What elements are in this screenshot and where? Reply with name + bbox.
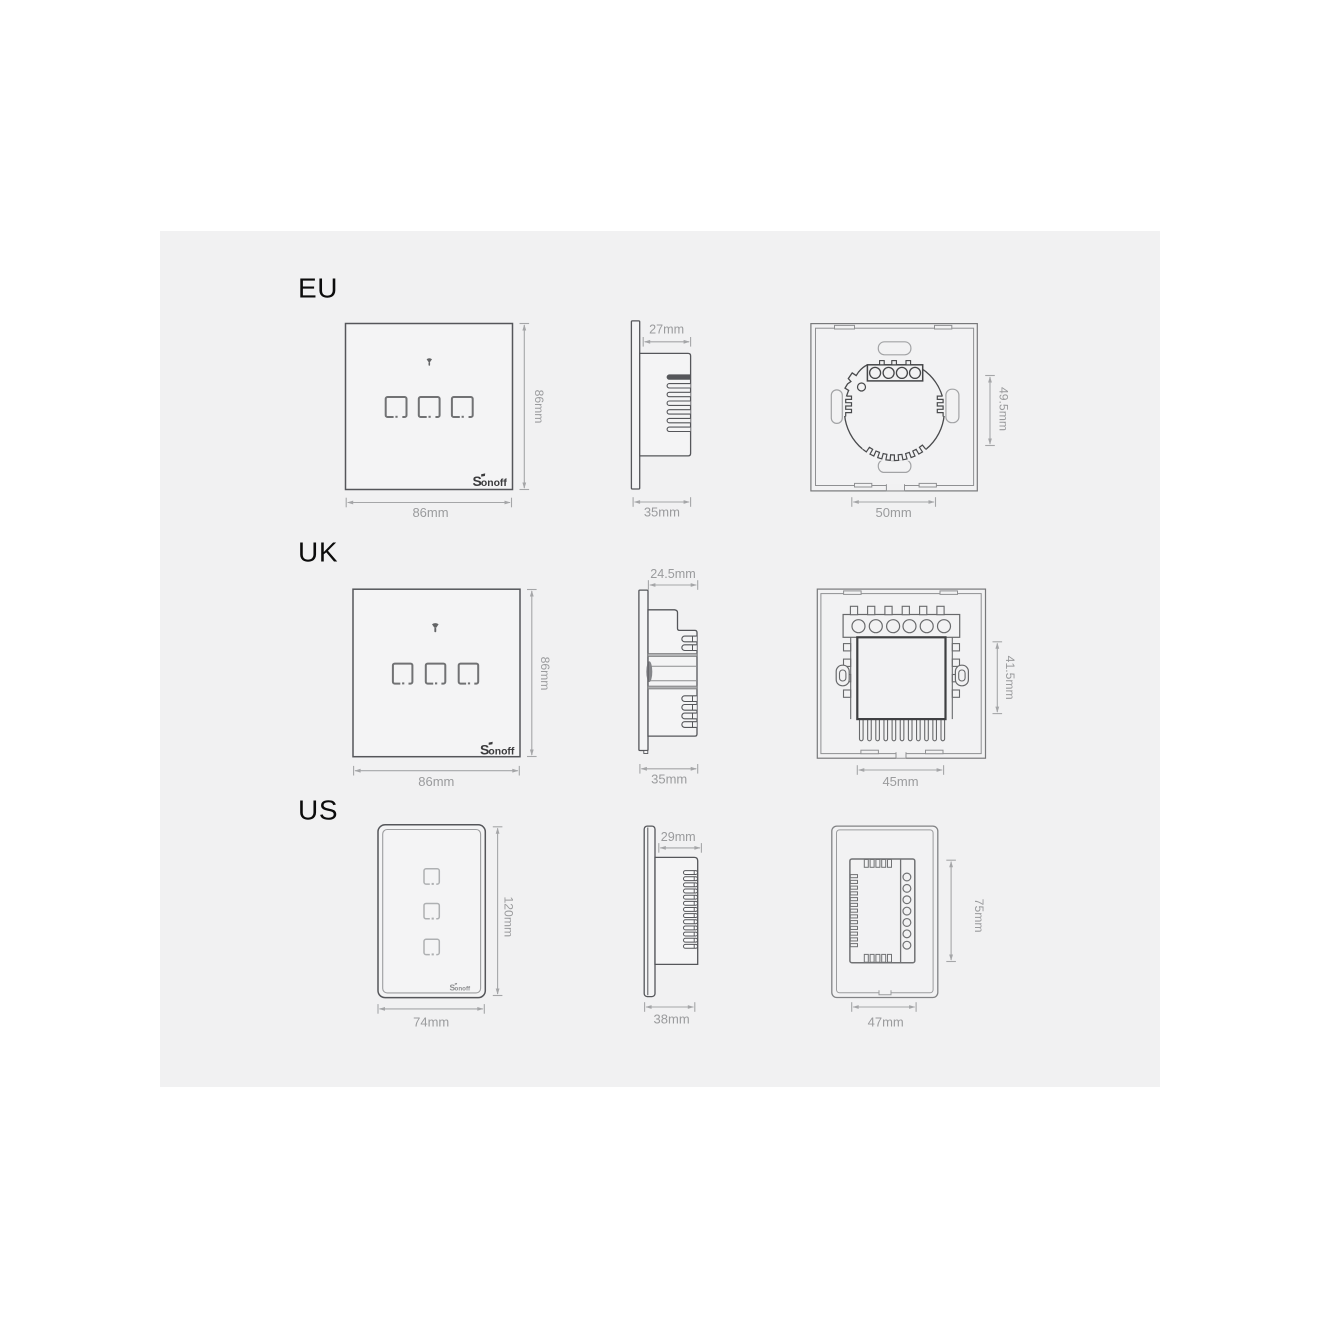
svg-text:86mm: 86mm [532,390,546,424]
svg-text:29mm: 29mm [661,830,696,844]
svg-text:38mm: 38mm [654,1012,690,1027]
svg-text:120mm: 120mm [501,896,515,937]
svg-text:86mm: 86mm [412,505,448,520]
svg-text:45mm: 45mm [882,774,918,789]
svg-text:EU: EU [298,273,338,304]
svg-text:UK: UK [298,537,338,568]
svg-text:86mm: 86mm [538,657,552,691]
svg-text:35mm: 35mm [651,772,687,787]
svg-text:74mm: 74mm [413,1014,449,1029]
svg-text:onoff: onoff [455,986,472,993]
svg-text:41.5mm: 41.5mm [1003,656,1017,700]
svg-text:24.5mm: 24.5mm [650,567,696,581]
svg-text:35mm: 35mm [644,505,680,520]
svg-text:US: US [298,795,338,826]
svg-text:onoff: onoff [488,747,515,758]
svg-text:75mm: 75mm [972,899,986,933]
svg-text:27mm: 27mm [649,323,684,337]
svg-text:50mm: 50mm [876,505,912,520]
svg-text:47mm: 47mm [868,1014,904,1029]
svg-text:onoff: onoff [481,478,508,489]
svg-text:49.5mm: 49.5mm [996,387,1010,431]
svg-text:86mm: 86mm [418,774,454,789]
